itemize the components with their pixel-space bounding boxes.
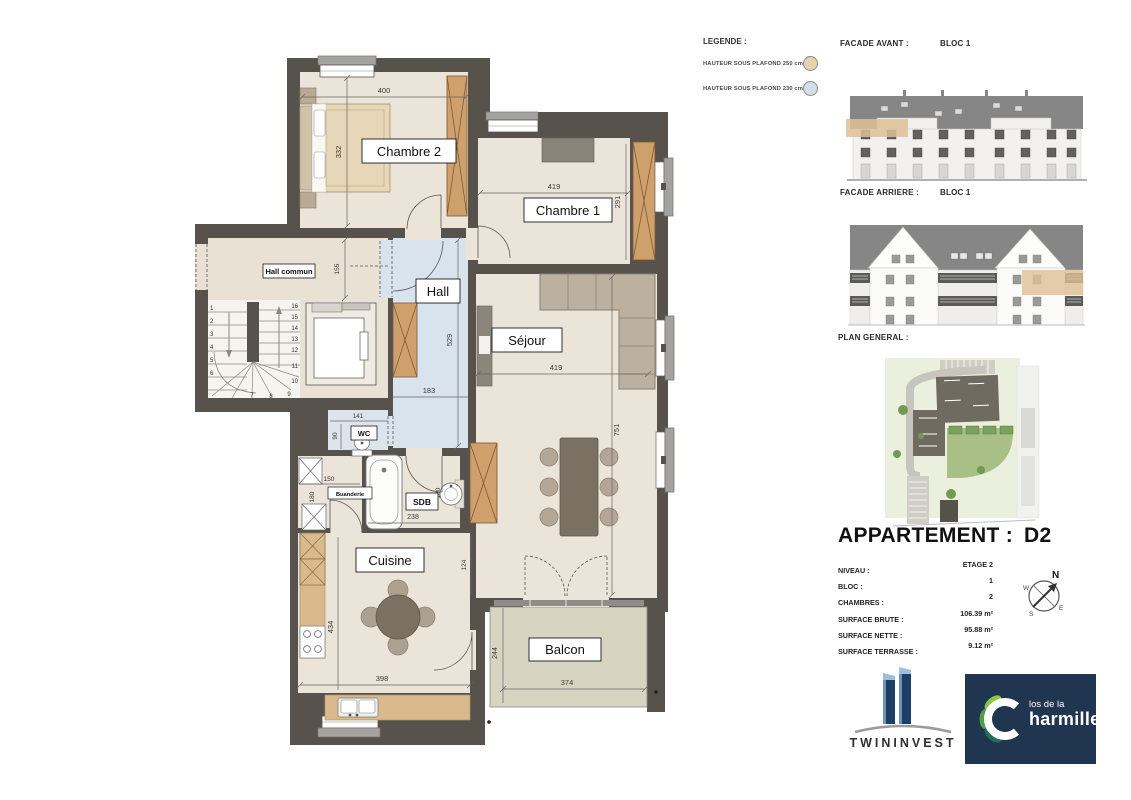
surface-nette-label: SURFACE NETTE : — [838, 631, 902, 640]
info-row-niveau: NIVEAU : ETAGE 2 — [838, 560, 993, 576]
dim-sdb-width: 238 — [407, 514, 419, 521]
dim-chambre2-width: 400 — [378, 86, 391, 95]
elevator — [306, 303, 376, 385]
site-plan-drawing — [885, 348, 1040, 532]
dim-sejour-width: 419 — [550, 363, 563, 372]
room-label-sdb: SDB — [413, 497, 431, 507]
dim-wc-width: 141 — [353, 413, 364, 420]
dim-buanderie-width: 150 — [324, 476, 335, 483]
compass-s: S — [1029, 611, 1034, 618]
compass-e: E — [1059, 605, 1064, 612]
ceiling-250-swatch — [803, 56, 818, 71]
dim-balcon-width: 374 — [561, 678, 574, 687]
charmille-line2: harmille — [1029, 710, 1100, 728]
survey-dot — [654, 690, 658, 694]
room-label-hall-commun: Hall commun — [265, 267, 313, 276]
room-label-buanderie: Buanderie — [336, 492, 365, 498]
dim-chambre1-width: 419 — [548, 182, 561, 191]
wardrobe — [542, 138, 594, 162]
surface-brute-label: SURFACE BRUTE : — [838, 615, 904, 624]
legend-item-250: HAUTEUR SOUS PLAFOND 250 cm — [703, 56, 825, 71]
apartment-title: APPARTEMENT : — [838, 524, 1013, 547]
surface-nette-value: 95.88 m² — [964, 625, 993, 634]
compass-icon: N W S E — [1018, 562, 1082, 626]
info-row-bloc: BLOC : 1 — [838, 576, 993, 592]
room-label-chambre2: Chambre 2 — [377, 144, 441, 159]
ceiling-230-swatch — [803, 81, 818, 96]
facade-avant-title: FACADE AVANT : — [840, 39, 909, 48]
stair-step: 11 — [292, 364, 299, 370]
info-row-chambres: CHAMBRES : 2 — [838, 592, 993, 608]
surface-brute-value: 106.39 m² — [960, 609, 993, 618]
charmille-wordmark: los de la harmille — [1029, 700, 1100, 728]
room-label-cuisine: Cuisine — [368, 553, 411, 568]
dim-balcon-height: 244 — [492, 647, 499, 659]
charmille-c-mark — [977, 690, 1035, 748]
survey-dot — [487, 720, 491, 724]
legend-item-label: HAUTEUR SOUS PLAFOND 250 cm — [703, 61, 803, 67]
info-row-surface-brute: SURFACE BRUTE : 106.39 m² — [838, 609, 993, 625]
plan-general-title: PLAN GENERAL : — [838, 333, 909, 342]
stair-step: 13 — [291, 337, 298, 343]
twininvest-logo: TWININVEST — [843, 666, 963, 750]
dim-hall-width: 183 — [423, 386, 436, 395]
room-label-hall: Hall — [427, 284, 450, 299]
dim-wc-height: 90 — [332, 432, 339, 440]
compass-n: N — [1052, 570, 1059, 581]
stair-step: 15 — [291, 315, 298, 321]
legend-title: LEGENDE : — [703, 37, 825, 46]
room-label-balcon: Balcon — [545, 642, 585, 657]
dim-cuisine-width: 398 — [376, 674, 389, 683]
dim-buanderie-height: 180 — [309, 491, 316, 502]
bloc-value: 1 — [989, 576, 993, 585]
niveau-label: NIVEAU : — [838, 566, 870, 575]
chambres-label: CHAMBRES : — [838, 598, 884, 607]
stair-step: 10 — [291, 379, 298, 385]
dim-hall-height: 529 — [445, 334, 454, 347]
stair-step: 12 — [291, 348, 298, 354]
legend: LEGENDE : HAUTEUR SOUS PLAFOND 250 cm HA… — [703, 37, 825, 96]
room-label-chambre1: Chambre 1 — [536, 203, 600, 218]
stair-step: 16 — [291, 304, 298, 310]
stair-step: 14 — [291, 326, 298, 332]
apartment-unit: D2 — [1024, 524, 1051, 548]
charmille-logo: los de la harmille — [965, 674, 1096, 764]
legend-item-230: HAUTEUR SOUS PLAFOND 230 cm — [703, 81, 825, 96]
dim-cuisine-right: 124 — [461, 559, 468, 570]
facade-avant-drawing — [845, 76, 1090, 186]
dim-cuisine-height: 434 — [326, 621, 335, 634]
facade-arriere-title: FACADE ARRIERE : — [840, 188, 919, 197]
dim-sejour-height: 751 — [612, 424, 621, 437]
apartment-highlight — [846, 119, 908, 137]
twininvest-wordmark: TWININVEST — [849, 736, 956, 750]
dim-chambre1-height: 291 — [613, 196, 622, 209]
legend-item-label: HAUTEUR SOUS PLAFOND 230 cm — [703, 86, 803, 92]
floor-plan: 1 2 3 4 5 6 7 8 9 10 11 12 13 14 15 16 — [185, 50, 715, 750]
facade-arriere-bloc: BLOC 1 — [940, 188, 971, 197]
bloc-label: BLOC : — [838, 582, 863, 591]
apartment-highlight — [1022, 270, 1083, 295]
room-label-wc: WC — [358, 429, 371, 438]
compass-w: W — [1023, 585, 1030, 592]
chambres-value: 2 — [989, 592, 993, 601]
dim-hall-commun-height: 155 — [334, 263, 341, 274]
page: 1 2 3 4 5 6 7 8 9 10 11 12 13 14 15 16 — [0, 0, 1131, 800]
info-row-surface-terrasse: SURFACE TERRASSE : 9.12 m² — [838, 641, 993, 657]
info-row-surface-nette: SURFACE NETTE : 95.88 m² — [838, 625, 993, 641]
surface-terrasse-value: 9.12 m² — [968, 641, 993, 650]
dim-chambre2-height: 332 — [334, 146, 343, 159]
niveau-value: ETAGE 2 — [963, 560, 993, 569]
facade-arriere-drawing — [848, 215, 1085, 330]
dining-table — [540, 438, 618, 536]
surface-terrasse-label: SURFACE TERRASSE : — [838, 647, 918, 656]
twininvest-arc — [855, 726, 951, 732]
room-label-sejour: Séjour — [508, 333, 546, 348]
facade-avant-bloc: BLOC 1 — [940, 39, 971, 48]
